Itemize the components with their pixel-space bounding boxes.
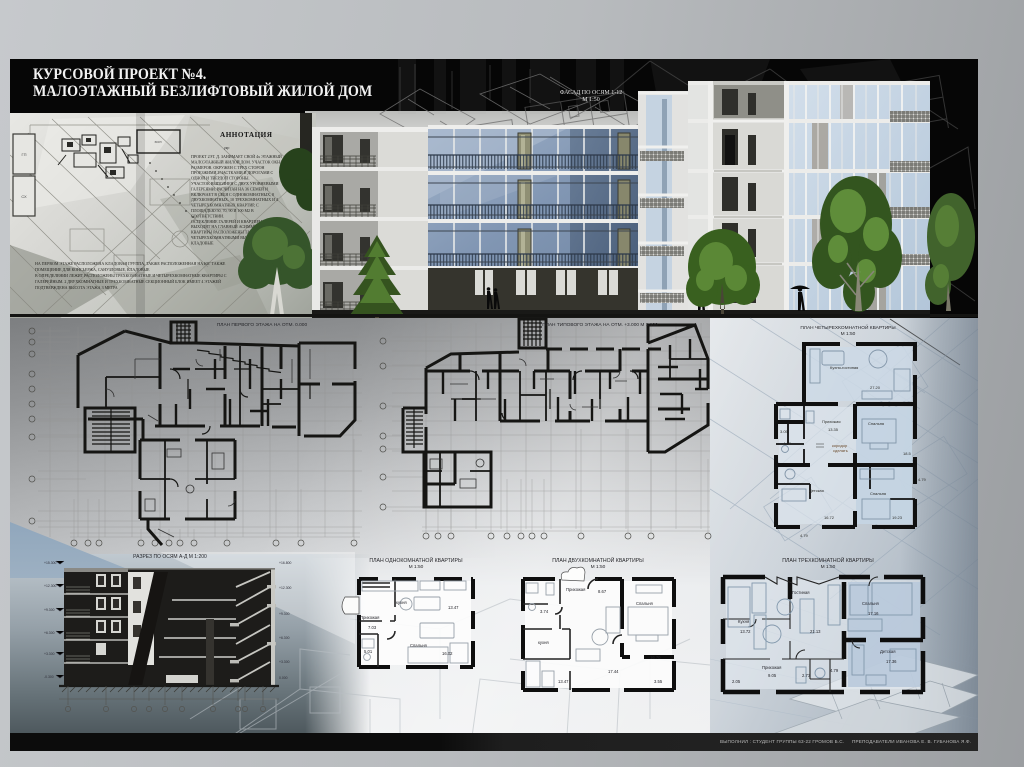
svg-text:18.5: 18.5	[903, 451, 912, 456]
svg-text:27.20: 27.20	[870, 385, 881, 390]
svg-text:4.79: 4.79	[830, 668, 839, 673]
svg-text:0.000: 0.000	[279, 676, 288, 680]
svg-text:М 1:50: М 1:50	[821, 564, 836, 570]
svg-text:СХ: СХ	[21, 194, 27, 199]
svg-text:3.55: 3.55	[654, 679, 663, 684]
svg-text:21.13: 21.13	[810, 629, 821, 634]
svg-text:кухня: кухня	[396, 600, 407, 605]
svg-text:4.79: 4.79	[800, 533, 809, 538]
svg-text:16.72: 16.72	[824, 515, 835, 520]
svg-text:М 1:50: М 1:50	[841, 331, 856, 337]
svg-text:УЧАСТОК ВЫПОЛНЕН С ДВУХ УРОВНЕ: УЧАСТОК ВЫПОЛНЕН С ДВУХ УРОВНЕВЫМИ	[191, 181, 279, 186]
svg-text:+12.300: +12.300	[44, 584, 56, 588]
svg-text:19.23: 19.23	[892, 515, 903, 520]
svg-text:ПЛАН ТИПОВОГО ЭТАЖА НА ОТМ. +3: ПЛАН ТИПОВОГО ЭТАЖА НА ОТМ. +3.000 М 1:1…	[542, 322, 658, 328]
svg-text:эксп: эксп	[154, 140, 161, 144]
svg-text:+16.800: +16.800	[279, 561, 291, 565]
svg-text:ПЛАН ДВУХКОМНАТНОЙ КВАРТИРЫ: ПЛАН ДВУХКОМНАТНОЙ КВАРТИРЫ	[552, 556, 644, 564]
svg-text:13.47: 13.47	[558, 679, 569, 684]
svg-text:Детская: Детская	[880, 649, 896, 654]
svg-text:7.03: 7.03	[368, 625, 377, 630]
svg-text:СООТВЕТСТВИИ.: СООТВЕТСТВИИ.	[191, 213, 224, 218]
svg-text:Кухня: Кухня	[738, 619, 749, 624]
svg-text:3.74: 3.74	[540, 609, 549, 614]
svg-text:16.70: 16.70	[650, 655, 661, 660]
svg-text:+6.300: +6.300	[279, 636, 290, 640]
svg-text:Спальня: Спальня	[870, 491, 886, 496]
svg-text:ГАЛЕРЕЯМИ. РАСЧИТАН НА 36 СЕМЕ: ГАЛЕРЕЯМИ. РАСЧИТАН НА 36 СЕМЕЙ И	[191, 186, 268, 191]
svg-text:13.47: 13.47	[448, 605, 459, 610]
svg-text:ОСТЕКЛЕНИЕ ГАЛЕРЕЙ И КВАРТИРЫ: ОСТЕКЛЕНИЕ ГАЛЕРЕЙ И КВАРТИРЫ	[191, 219, 263, 224]
svg-text:ГАЛЕРЕЙНЫМ. 2 ДВУХКОМНАТНЫЕ И: ГАЛЕРЕЙНЫМ. 2 ДВУХКОМНАТНЫЕ И ТРЕХКОМНАТ…	[35, 279, 221, 284]
svg-text:Спальня: Спальня	[862, 601, 879, 606]
svg-text:ПОДТВЕРЖДЕНА ВЫСОТА ЭТАЖА 3 МЕ: ПОДТВЕРЖДЕНА ВЫСОТА ЭТАЖА 3 МЕТРА	[35, 285, 118, 290]
svg-text:17.36: 17.36	[886, 659, 897, 664]
svg-text:ОДНОЙ И ТВЕРДОЙ СТОРОНЫ.: ОДНОЙ И ТВЕРДОЙ СТОРОНЫ.	[191, 176, 249, 181]
svg-text:13.35: 13.35	[828, 427, 839, 432]
svg-text:КЛАДОВЫЕ: КЛАДОВЫЕ	[191, 240, 214, 245]
svg-text:Прихожая: Прихожая	[762, 665, 781, 670]
svg-text:М 1:50: М 1:50	[591, 564, 606, 570]
svg-text:Детская: Детская	[809, 488, 824, 493]
svg-text:4.79: 4.79	[918, 477, 927, 482]
svg-text:Спальня: Спальня	[868, 421, 884, 426]
svg-text:13.72: 13.72	[740, 629, 751, 634]
svg-text:17.44: 17.44	[608, 669, 619, 674]
svg-text:Прихожая: Прихожая	[822, 419, 841, 424]
svg-text:ПЛАН ПЕРВОГО ЭТАЖА НА ОТМ. 0.0: ПЛАН ПЕРВОГО ЭТАЖА НА ОТМ. 0.000	[217, 322, 308, 328]
svg-text:Прихожая: Прихожая	[566, 587, 585, 592]
svg-text:16.02: 16.02	[442, 651, 453, 656]
svg-text:9.05: 9.05	[768, 673, 777, 678]
svg-text:3.05: 3.05	[780, 429, 789, 434]
svg-text:+6.300: +6.300	[44, 631, 55, 635]
svg-text:ПРОЕКТ 2ЭТ. Д. ЗАНИМАЕТ СВОЙ 4: ПРОЕКТ 2ЭТ. Д. ЗАНИМАЕТ СВОЙ 4х ЭТАЖНЫЙ	[191, 154, 282, 159]
svg-text:+12.300: +12.300	[279, 586, 291, 590]
svg-text:17.16: 17.16	[868, 611, 879, 616]
svg-text:укр: укр	[224, 146, 229, 150]
svg-text:-0.300: -0.300	[44, 675, 54, 679]
svg-text:АННОТАЦИЯ: АННОТАЦИЯ	[220, 131, 273, 139]
svg-text:+15.300: +15.300	[44, 561, 56, 565]
svg-text:МАЛОЭТАЖНЫЙ ЖИЛОЙ ДОМ. УЧАСТОК: МАЛОЭТАЖНЫЙ ЖИЛОЙ ДОМ. УЧАСТОК ОКНА	[191, 159, 283, 164]
svg-text:+3.300: +3.300	[44, 652, 55, 656]
svg-text:РАЗРЕЗ ПО ОСЯМ А-Д М 1:200: РАЗРЕЗ ПО ОСЯМ А-Д М 1:200	[133, 554, 207, 560]
svg-text:Спальня: Спальня	[410, 643, 427, 648]
svg-text:5.01: 5.01	[364, 649, 373, 654]
svg-text:кухня: кухня	[538, 640, 549, 645]
svg-text:4.67: 4.67	[783, 441, 792, 446]
svg-text:ПЛАН ТРЕХКОМНАТНОЙ КВАРТИРЫ: ПЛАН ТРЕХКОМНАТНОЙ КВАРТИРЫ	[782, 556, 874, 564]
svg-text:ГП: ГП	[21, 152, 26, 157]
svg-text:2.05: 2.05	[732, 679, 741, 684]
svg-text:+9.300: +9.300	[44, 608, 55, 612]
svg-text:Гостиная: Гостиная	[792, 590, 810, 595]
svg-text:сделать: сделать	[833, 448, 848, 453]
svg-text:8.67: 8.67	[598, 589, 607, 594]
svg-text:+3.300: +3.300	[279, 660, 290, 664]
svg-text:ПЛАН ОДНОКОМНАТНОЙ КВАРТИРЫ: ПЛАН ОДНОКОМНАТНОЙ КВАРТИРЫ	[369, 556, 463, 564]
svg-text:+9.300: +9.300	[279, 612, 290, 616]
svg-text:Спальня: Спальня	[636, 601, 653, 606]
svg-text:РАЗМЕРОВ. ОКРУЖЕН С ТРЕХ СТОРО: РАЗМЕРОВ. ОКРУЖЕН С ТРЕХ СТОРОН	[191, 165, 265, 170]
svg-text:2.73: 2.73	[802, 673, 811, 678]
svg-text:Кухня-гостиная: Кухня-гостиная	[830, 365, 858, 370]
svg-text:ПРОЕЗЖИМИ УЧАСТКАМИ И ДОРОГАМИ: ПРОЕЗЖИМИ УЧАСТКАМИ И ДОРОГАМИ С	[191, 170, 274, 175]
svg-text:М 1:50: М 1:50	[409, 564, 424, 570]
svg-text:Прихожая: Прихожая	[360, 615, 379, 620]
svg-text:ПЛАН ЧЕТЫРЕХКОМНАТНОЙ КВАРТИРЫ: ПЛАН ЧЕТЫРЕХКОМНАТНОЙ КВАРТИРЫ	[800, 323, 895, 331]
svg-text:В ОПРЕДЕЛЕНИИ ЛЕЖИТ РАСПОЛОЖЕН: В ОПРЕДЕЛЕНИИ ЛЕЖИТ РАСПОЛОЖЕНЫ ТРЕХКОМН…	[35, 273, 227, 278]
